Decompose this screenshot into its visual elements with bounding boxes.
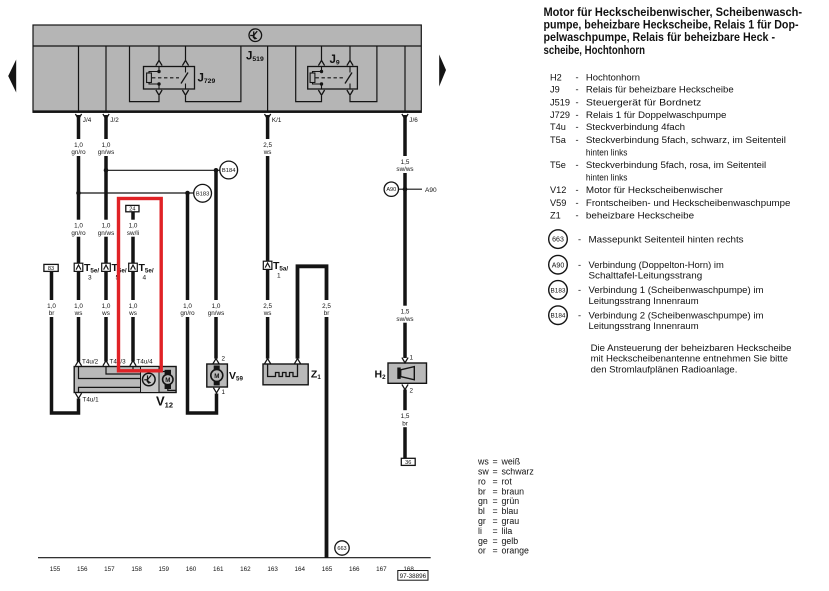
svg-text:2,5: 2,5: [322, 303, 331, 310]
svg-text:2: 2: [410, 388, 414, 395]
svg-text:B184: B184: [551, 313, 566, 320]
svg-text:Z1: Z1: [311, 369, 321, 382]
svg-text:=: =: [493, 526, 498, 536]
svg-text:=: =: [493, 476, 498, 486]
svg-text:gn/ro: gn/ro: [180, 310, 195, 317]
svg-text:1,0: 1,0: [102, 142, 111, 149]
svg-text:-: -: [578, 234, 581, 244]
svg-text:ws: ws: [263, 149, 272, 156]
svg-text:24: 24: [129, 206, 135, 212]
svg-text:grün: grün: [502, 496, 520, 506]
svg-text:166: 166: [349, 566, 360, 573]
svg-text:155: 155: [50, 566, 61, 573]
svg-text:V12: V12: [550, 185, 566, 195]
svg-text:br: br: [49, 310, 55, 317]
svg-text:156: 156: [77, 566, 88, 573]
svg-text:Verbindung 1 (Scheibenwaschpum: Verbindung 1 (Scheibenwaschpumpe) im: [589, 285, 764, 295]
svg-text:663: 663: [552, 237, 564, 244]
svg-text:or: or: [478, 546, 486, 556]
svg-text:159: 159: [159, 566, 170, 573]
svg-text:gn/ro: gn/ro: [71, 149, 86, 156]
svg-text:1,0: 1,0: [183, 303, 192, 310]
svg-text:gn/ws: gn/ws: [208, 310, 224, 317]
svg-text:158: 158: [131, 566, 142, 573]
svg-text:3: 3: [88, 275, 92, 282]
svg-text:Steckverbindung 5fach, schwarz: Steckverbindung 5fach, schwarz, im Seite…: [586, 135, 786, 145]
svg-text:J/6: J/6: [409, 117, 418, 124]
svg-text:J9: J9: [550, 85, 560, 95]
svg-text:A90: A90: [386, 187, 396, 193]
svg-text:1: 1: [222, 389, 226, 396]
svg-text:1,5: 1,5: [401, 413, 410, 420]
svg-text:=: =: [493, 496, 498, 506]
svg-text:T4u/1: T4u/1: [83, 397, 100, 404]
svg-text:-: -: [576, 110, 579, 120]
svg-text:4: 4: [143, 275, 147, 282]
svg-text:1,5: 1,5: [401, 159, 410, 166]
svg-text:2,5: 2,5: [263, 303, 272, 310]
svg-text:B184: B184: [222, 168, 236, 174]
svg-text:gn: gn: [478, 496, 488, 506]
svg-text:B183: B183: [551, 287, 566, 294]
svg-text:J/2: J/2: [110, 117, 119, 124]
svg-text:T5a: T5a: [550, 135, 567, 145]
svg-text:M: M: [165, 377, 170, 384]
svg-text:Die Ansteuerung der beheizbare: Die Ansteuerung der beheizbaren Hecksche…: [591, 343, 792, 353]
svg-text:J729: J729: [550, 110, 570, 120]
svg-text:pumpe, beheizbare Heckscheibe,: pumpe, beheizbare Heckscheibe, Relais 1 …: [544, 19, 799, 32]
svg-text:Hochtonhorn: Hochtonhorn: [586, 72, 640, 82]
svg-text:97-38896: 97-38896: [400, 573, 427, 580]
svg-text:1,0: 1,0: [74, 303, 83, 310]
svg-text:gn/ws: gn/ws: [98, 149, 114, 156]
svg-text:1,0: 1,0: [129, 223, 138, 230]
svg-text:1,0: 1,0: [212, 303, 221, 310]
svg-text:M: M: [214, 373, 219, 380]
svg-text:blau: blau: [502, 506, 519, 516]
svg-text:T5a/: T5a/: [273, 260, 288, 273]
svg-text:Motor für Heckscheibenwischer: Motor für Heckscheibenwischer: [586, 185, 723, 195]
svg-text:=: =: [493, 516, 498, 526]
svg-text:161: 161: [213, 566, 224, 573]
svg-text:Leitungsstrang Innenraum: Leitungsstrang Innenraum: [589, 321, 699, 331]
svg-text:gn/ro: gn/ro: [71, 230, 86, 237]
svg-text:rot: rot: [502, 476, 513, 486]
svg-text:bl: bl: [478, 506, 485, 516]
svg-text:1,0: 1,0: [74, 142, 83, 149]
svg-text:Frontscheiben- und Heckscheibe: Frontscheiben- und Heckscheibenwaschpump…: [586, 198, 791, 208]
svg-text:T4u: T4u: [550, 122, 566, 132]
svg-text:beheizbare Heckscheibe: beheizbare Heckscheibe: [586, 210, 694, 220]
svg-text:K/1: K/1: [272, 117, 282, 124]
svg-text:T5e: T5e: [550, 160, 566, 170]
svg-text:T5e/: T5e/: [139, 262, 154, 275]
svg-text:mit Heckscheibenantenne entneh: mit Heckscheibenantenne entnehmen Sie bi…: [591, 354, 788, 364]
svg-text:162: 162: [240, 566, 251, 573]
svg-text:sw/li: sw/li: [127, 230, 139, 237]
svg-text:36: 36: [405, 460, 411, 466]
svg-text:=: =: [493, 467, 498, 477]
svg-text:83: 83: [48, 266, 54, 272]
svg-text:Verbindung (Doppelton-Horn) im: Verbindung (Doppelton-Horn) im: [589, 260, 725, 270]
svg-text:1,0: 1,0: [102, 223, 111, 230]
svg-text:=: =: [493, 506, 498, 516]
svg-text:1: 1: [277, 273, 281, 280]
svg-text:ge: ge: [478, 536, 488, 546]
svg-text:2: 2: [222, 356, 226, 363]
svg-text:T4u/4: T4u/4: [137, 359, 154, 366]
svg-text:br: br: [478, 486, 486, 496]
svg-text:br: br: [402, 420, 408, 427]
svg-text:ro: ro: [478, 476, 486, 486]
svg-text:sw/ws: sw/ws: [396, 166, 413, 173]
svg-text:sw/ws: sw/ws: [396, 316, 413, 323]
svg-text:-: -: [578, 285, 581, 295]
svg-text:2,5: 2,5: [263, 142, 272, 149]
svg-text:-: -: [576, 185, 579, 195]
svg-text:lila: lila: [502, 526, 513, 536]
svg-text:sw: sw: [478, 467, 489, 477]
svg-text:ws: ws: [263, 310, 272, 317]
svg-text:-: -: [576, 135, 579, 145]
svg-text:-: -: [576, 198, 579, 208]
svg-text:-: -: [578, 260, 581, 270]
svg-text:163: 163: [267, 566, 278, 573]
svg-text:A90: A90: [552, 262, 565, 269]
svg-text:ws: ws: [128, 310, 137, 317]
svg-text:hinten links: hinten links: [586, 147, 628, 157]
svg-text:A90: A90: [425, 187, 437, 194]
svg-text:1,0: 1,0: [47, 303, 56, 310]
svg-text:Steckverbindung 4fach: Steckverbindung 4fach: [586, 122, 685, 132]
svg-text:165: 165: [322, 566, 333, 573]
svg-text:li: li: [478, 526, 482, 536]
svg-text:1,5: 1,5: [401, 309, 410, 316]
svg-text:ws: ws: [74, 310, 83, 317]
svg-text:160: 160: [186, 566, 197, 573]
svg-text:-: -: [576, 160, 579, 170]
svg-text:ws: ws: [477, 457, 489, 467]
svg-text:weiß: weiß: [501, 457, 521, 467]
svg-text:scheibe, Hochtonhorn: scheibe, Hochtonhorn: [544, 44, 646, 57]
svg-text:1: 1: [410, 355, 414, 362]
svg-text:1,0: 1,0: [74, 223, 83, 230]
svg-text:H2: H2: [550, 72, 562, 82]
svg-text:H2: H2: [375, 369, 387, 382]
svg-text:braun: braun: [502, 486, 525, 496]
svg-text:schwarz: schwarz: [502, 467, 534, 477]
svg-text:-: -: [576, 72, 579, 82]
svg-text:orange: orange: [502, 546, 529, 556]
svg-text:T5e/: T5e/: [84, 262, 99, 275]
svg-text:V12: V12: [156, 394, 173, 410]
svg-text:gn/ws: gn/ws: [98, 230, 114, 237]
svg-text:-: -: [576, 85, 579, 95]
svg-text:Massepunkt Seitenteil hinten r: Massepunkt Seitenteil hinten rechts: [589, 234, 745, 244]
svg-text:-: -: [576, 97, 579, 107]
svg-text:Relais 1 für Doppelwaschpumpe: Relais 1 für Doppelwaschpumpe: [586, 110, 727, 120]
svg-text:-: -: [576, 210, 579, 220]
svg-text:grau: grau: [502, 516, 520, 526]
svg-text:J519: J519: [550, 97, 570, 107]
svg-text:T4u/2: T4u/2: [82, 359, 99, 366]
svg-text:ws: ws: [101, 310, 110, 317]
svg-text:den Stromlaufplänen Radioanlag: den Stromlaufplänen Radioanlage.: [591, 365, 738, 375]
svg-text:gelb: gelb: [502, 536, 519, 546]
svg-text:167: 167: [376, 566, 387, 573]
svg-text:1,0: 1,0: [129, 303, 138, 310]
svg-text:Schalttafel-Leitungsstrang: Schalttafel-Leitungsstrang: [589, 271, 703, 281]
svg-text:Leitungsstrang Innenraum: Leitungsstrang Innenraum: [589, 296, 699, 306]
svg-text:gr: gr: [478, 516, 486, 526]
svg-text:V59: V59: [229, 370, 243, 383]
svg-text:=: =: [493, 486, 498, 496]
svg-text:Motor für Heckscheibenwischer,: Motor für Heckscheibenwischer, Scheibenw…: [544, 6, 803, 19]
svg-text:Steuergerät für Bordnetz: Steuergerät für Bordnetz: [586, 97, 702, 107]
svg-text:-: -: [578, 310, 581, 320]
svg-text:br: br: [324, 310, 330, 317]
svg-text:Relais für beheizbare Hecksche: Relais für beheizbare Heckscheibe: [586, 85, 734, 95]
svg-text:B183: B183: [196, 191, 210, 197]
svg-text:J/4: J/4: [83, 117, 92, 124]
svg-text:=: =: [493, 546, 498, 556]
svg-text:-: -: [576, 122, 579, 132]
svg-text:=: =: [493, 457, 498, 467]
svg-text:Z1: Z1: [550, 210, 561, 220]
svg-text:1,0: 1,0: [102, 303, 111, 310]
svg-text:pelwaschpumpe, Relais für behe: pelwaschpumpe, Relais für beheizbare Hec…: [544, 31, 776, 44]
svg-text:V59: V59: [550, 198, 566, 208]
svg-text:Verbindung 2 (Scheibenwaschpum: Verbindung 2 (Scheibenwaschpumpe) im: [589, 310, 764, 320]
svg-text:=: =: [493, 536, 498, 546]
svg-text:Steckverbindung 5fach, rosa, i: Steckverbindung 5fach, rosa, im Seitente…: [586, 160, 766, 170]
svg-text:hinten links: hinten links: [586, 173, 628, 183]
svg-text:164: 164: [295, 566, 306, 573]
svg-text:157: 157: [104, 566, 115, 573]
svg-text:663: 663: [337, 546, 346, 552]
